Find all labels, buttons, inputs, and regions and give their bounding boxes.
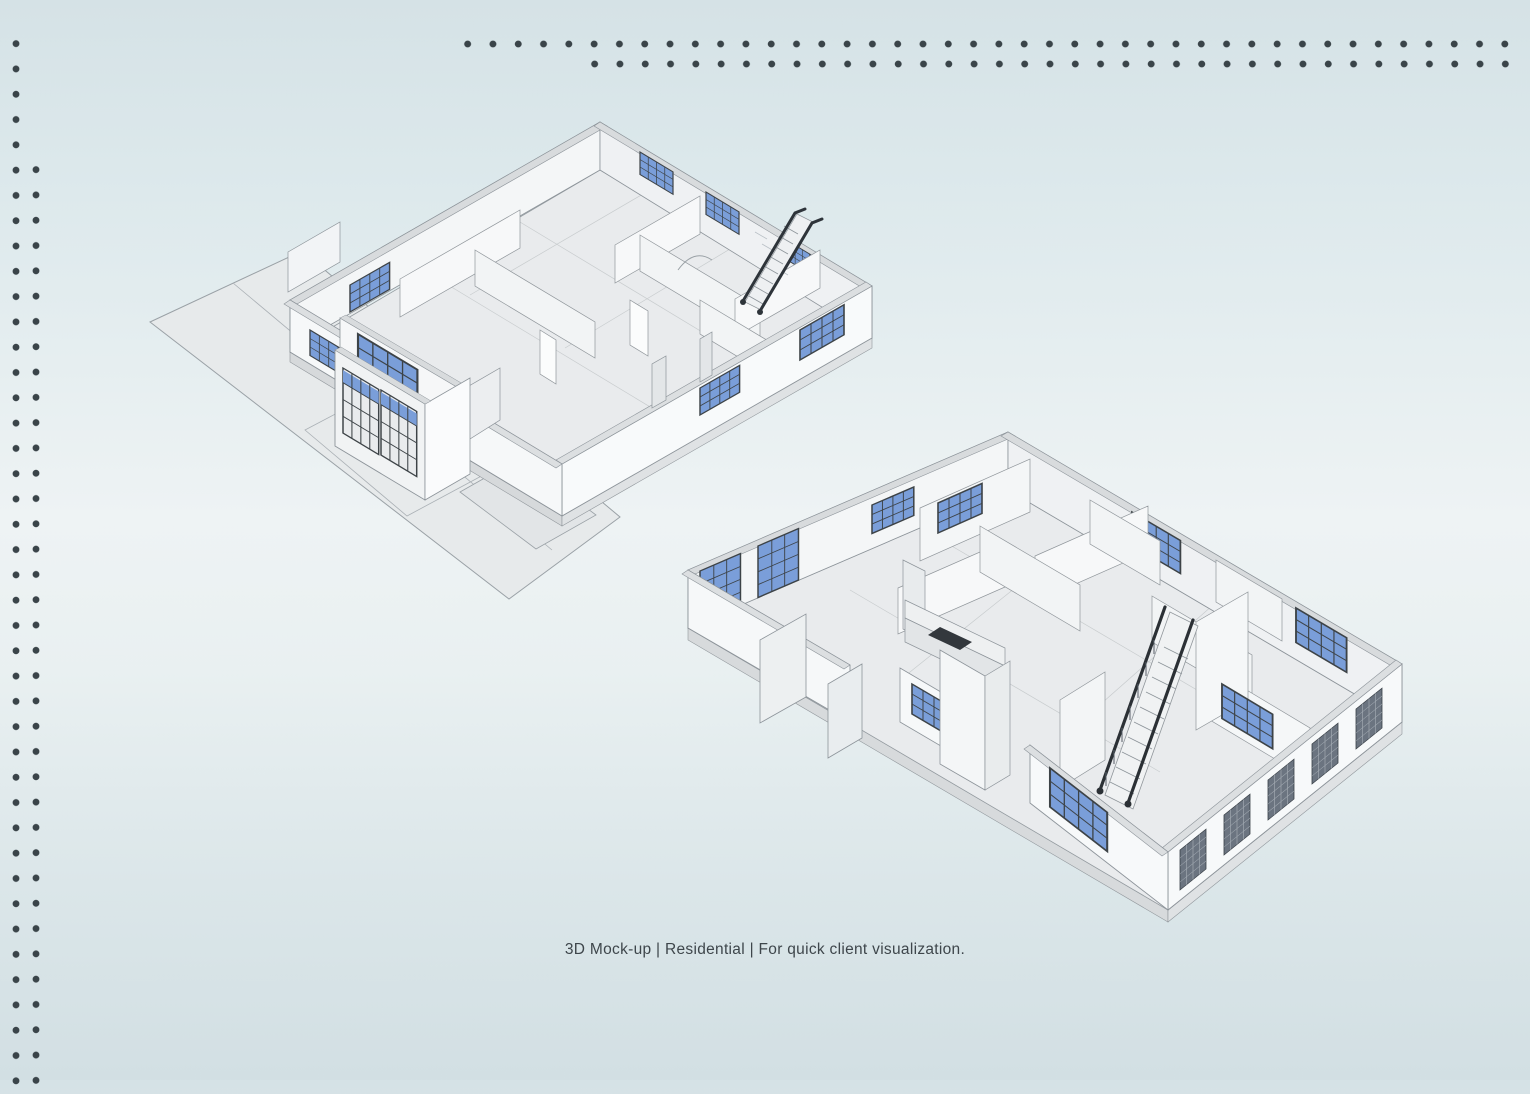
- portfolio-page: { "page": { "background": { "top": "#d5e…: [0, 0, 1530, 1080]
- caption-text: 3D Mock-up | Residential | For quick cli…: [0, 941, 1530, 959]
- dot-grid-top-row-1: [455, 37, 1518, 51]
- dot-grid-left-column-1: [9, 31, 23, 1094]
- dot-grid-top-row-2: [582, 57, 1518, 71]
- floor-plan-model-front-view: [660, 415, 1430, 925]
